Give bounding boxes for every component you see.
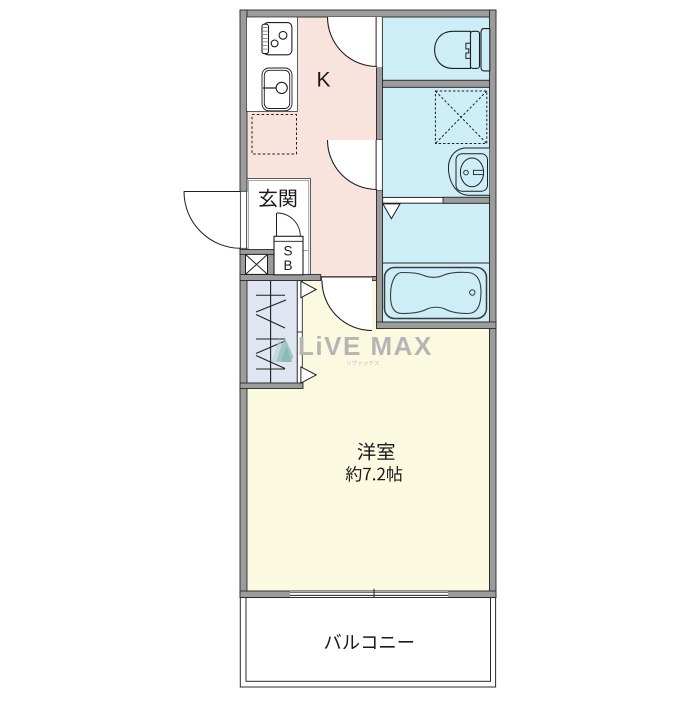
svg-text:LiVE MAX: LiVE MAX xyxy=(298,331,433,361)
svg-text:S: S xyxy=(283,243,292,258)
svg-text:B: B xyxy=(283,258,292,273)
svg-text:K: K xyxy=(316,69,330,92)
